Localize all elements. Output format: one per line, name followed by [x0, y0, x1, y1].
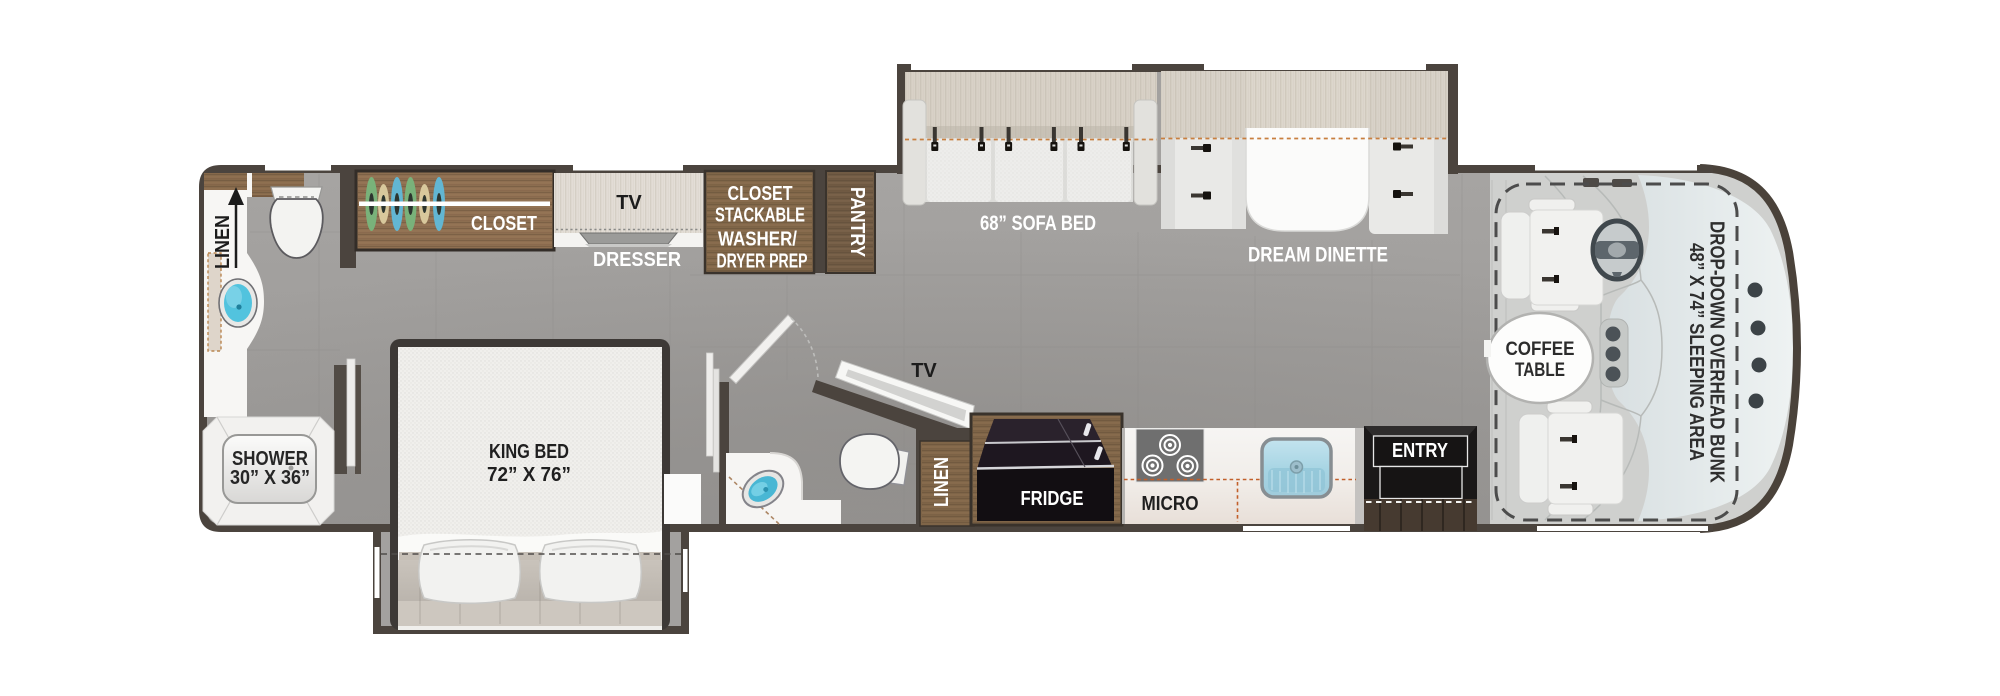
svg-text:DREAM DINETTE: DREAM DINETTE	[1248, 244, 1388, 267]
svg-text:MICRO: MICRO	[1142, 493, 1199, 515]
svg-text:COFFEE: COFFEE	[1506, 339, 1575, 360]
svg-text:72” X 76”: 72” X 76”	[487, 464, 571, 486]
svg-text:CLOSET: CLOSET	[728, 183, 793, 205]
svg-text:KING BED: KING BED	[489, 441, 569, 463]
svg-text:FRIDGE: FRIDGE	[1021, 488, 1084, 510]
svg-text:CLOSET: CLOSET	[471, 213, 537, 235]
svg-text:ENTRY: ENTRY	[1392, 440, 1449, 462]
svg-text:PANTRY: PANTRY	[846, 187, 868, 258]
svg-text:68” SOFA BED: 68” SOFA BED	[980, 212, 1096, 235]
svg-text:TABLE: TABLE	[1515, 360, 1565, 381]
svg-text:DRYER PREP: DRYER PREP	[717, 251, 808, 273]
svg-text:STACKABLE: STACKABLE	[715, 205, 805, 227]
svg-text:30” X 36”: 30” X 36”	[230, 467, 310, 489]
svg-text:LINEN: LINEN	[212, 215, 234, 269]
svg-text:DROP-DOWN OVERHEAD BUNK: DROP-DOWN OVERHEAD BUNK	[1706, 221, 1728, 483]
svg-text:TV: TV	[911, 360, 937, 382]
svg-text:LINEN: LINEN	[931, 457, 953, 507]
svg-text:DRESSER: DRESSER	[593, 249, 681, 271]
svg-text:48” X 74” SLEEPING AREA: 48” X 74” SLEEPING AREA	[1685, 243, 1707, 461]
svg-text:TV: TV	[616, 192, 642, 214]
svg-text:WASHER/: WASHER/	[718, 229, 797, 251]
